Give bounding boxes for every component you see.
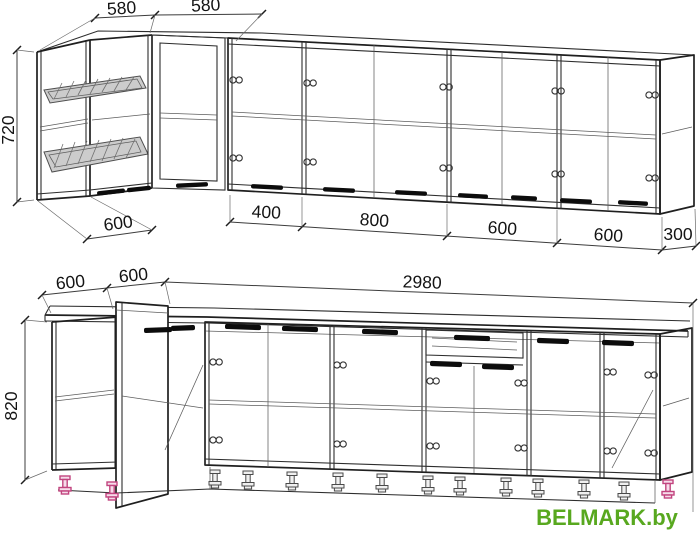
base-cabinets-drawing: 600 600 2980 820 xyxy=(1,264,697,512)
pink-foot-1 xyxy=(59,476,71,494)
drawing-canvas: 580 580 720 600 400 800 600 600 300 xyxy=(0,0,700,540)
dim-label-580-right: 580 xyxy=(191,0,221,16)
dim-label-2980: 2980 xyxy=(402,271,442,292)
base-cabinet-end-panel xyxy=(660,328,692,480)
corner-cabinet-open-door xyxy=(116,302,203,508)
dim-label-820: 820 xyxy=(1,391,21,420)
kitchen-technical-drawing: 580 580 720 600 400 800 600 600 300 xyxy=(0,0,700,540)
dim-label-800: 800 xyxy=(359,209,390,231)
hinge-marks-upper xyxy=(230,77,658,181)
dim-label-720: 720 xyxy=(0,115,18,144)
wall-cabinet-run xyxy=(228,38,660,214)
base-cabinet-run xyxy=(122,322,660,480)
watermark-logo: BELMARK.by xyxy=(536,505,679,530)
base-cabinet-left-side xyxy=(52,317,118,470)
wall-cabinet-left-side xyxy=(37,40,90,200)
wall-corner-cabinet xyxy=(90,35,225,196)
dim-label-600-upper-left: 600 xyxy=(102,211,134,235)
dim-label-400: 400 xyxy=(251,201,281,223)
dim-label-600-lower-right: 600 xyxy=(118,264,149,287)
dim-label-600-lower-left: 600 xyxy=(55,271,86,294)
lower-dimensions: 600 600 2980 820 xyxy=(1,264,697,512)
wall-cabinet-end-panel xyxy=(660,55,694,214)
wire-basket-bottom xyxy=(44,137,148,172)
dim-label-580-left: 580 xyxy=(106,0,137,19)
upper-cabinets-drawing: 580 580 720 600 400 800 600 600 300 xyxy=(0,0,700,254)
dim-label-300: 300 xyxy=(663,224,692,244)
cabinet-handles-upper xyxy=(97,182,648,206)
dim-label-600-upper-right: 600 xyxy=(593,224,624,246)
dim-label-600-upper-mid: 600 xyxy=(487,217,518,239)
pink-foot-3 xyxy=(662,480,674,498)
hinge-marks-lower xyxy=(210,359,657,456)
drawer-unit xyxy=(426,330,523,473)
wire-basket-top xyxy=(44,76,146,103)
